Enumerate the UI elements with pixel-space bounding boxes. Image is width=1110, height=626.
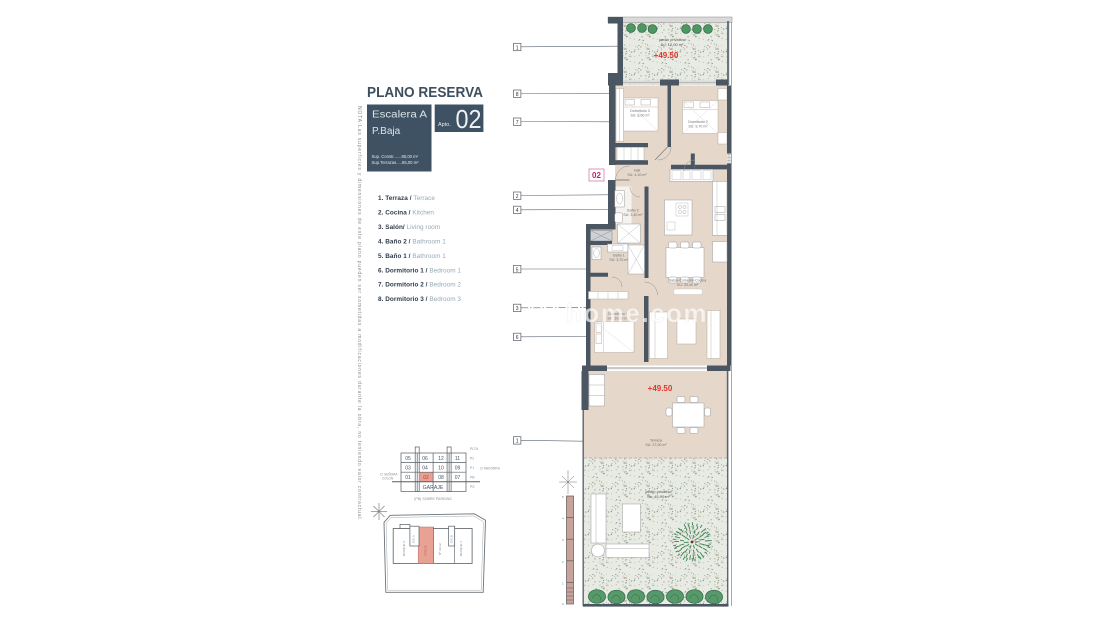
svg-text:P1: P1 xyxy=(470,466,474,470)
svg-text:BLOQUE 1: BLOQUE 1 xyxy=(459,541,463,556)
svg-text:12: 12 xyxy=(438,456,444,462)
svg-text:6. Dormitorio 1 / Bedroom 1: 6. Dormitorio 1 / Bedroom 1 xyxy=(378,268,461,275)
svg-text:PS: PS xyxy=(470,485,475,489)
svg-text:1: 1 xyxy=(516,45,519,51)
svg-text:5: 5 xyxy=(516,267,519,273)
svg-text:07: 07 xyxy=(455,475,461,481)
svg-text:Salón-Comedor-Cocina: Salón-Comedor-Cocina xyxy=(669,279,707,283)
svg-text:+49.50: +49.50 xyxy=(648,384,673,393)
svg-text:7: 7 xyxy=(516,120,519,126)
svg-text:Dormitorio 2: Dormitorio 2 xyxy=(688,120,708,124)
svg-text:ESC.A: ESC.A xyxy=(412,535,416,543)
svg-text:PLANO RESERVA: PLANO RESERVA xyxy=(367,85,483,101)
svg-text:3. Salón/ Living room: 3. Salón/ Living room xyxy=(378,224,440,231)
svg-text:Su: 45,90 m²: Su: 45,90 m² xyxy=(647,494,671,499)
svg-text:Sup.Terrazas.....85,00 m²: Sup.Terrazas.....85,00 m² xyxy=(372,160,420,165)
svg-text:(PB) SOBRE PARKING: (PB) SOBRE PARKING xyxy=(414,497,452,501)
svg-text:C/ ANDORRA: C/ ANDORRA xyxy=(480,467,501,471)
svg-text:Apto.: Apto. xyxy=(438,122,451,128)
svg-text:Sup. Constr.......86,00 m²: Sup. Constr.......86,00 m² xyxy=(372,154,419,159)
svg-text:10: 10 xyxy=(438,465,444,471)
svg-text:Su: 12,00 m²: Su: 12,00 m² xyxy=(661,42,685,47)
svg-text:8: 8 xyxy=(516,92,519,98)
svg-text:4: 4 xyxy=(516,208,519,214)
svg-text:8. Dormitorio 3 / Bedroom 3: 8. Dormitorio 3 / Bedroom 3 xyxy=(378,296,461,303)
svg-text:02: 02 xyxy=(423,475,429,481)
svg-text:6: 6 xyxy=(516,335,519,341)
svg-text:SU: 27,00 m²: SU: 27,00 m² xyxy=(645,443,667,447)
svg-text:1: 1 xyxy=(516,439,519,445)
svg-text:3: 3 xyxy=(516,306,519,312)
svg-text:01: 01 xyxy=(405,475,411,481)
svg-text:02: 02 xyxy=(592,171,601,180)
svg-text:4. Baño 2 / Bathroom 1: 4. Baño 2 / Bathroom 1 xyxy=(378,239,446,246)
svg-text:Dormitorio 3: Dormitorio 3 xyxy=(630,109,650,113)
svg-text:Nº 10-12: Nº 10-12 xyxy=(438,543,442,555)
svg-text:P2: P2 xyxy=(470,457,474,461)
svg-text:7. Dormitorio 2 / Bedroom 2: 7. Dormitorio 2 / Bedroom 2 xyxy=(378,282,461,289)
svg-text:02: 02 xyxy=(456,104,482,134)
svg-text:Baño 2: Baño 2 xyxy=(627,209,638,213)
svg-text:SU: 4,10 m²: SU: 4,10 m² xyxy=(627,173,647,177)
svg-text:NOTA:Las superficies y dimensi: NOTA:Las superficies y dimensiones de es… xyxy=(356,106,362,522)
svg-text:Terraza: Terraza xyxy=(650,439,662,443)
svg-text:ESC.B: ESC.B xyxy=(449,535,453,543)
svg-text:Hall: Hall xyxy=(634,169,640,173)
svg-text:06: 06 xyxy=(422,456,428,462)
svg-text:Escalera A: Escalera A xyxy=(372,110,427,121)
svg-text:Baño 1: Baño 1 xyxy=(613,254,624,258)
svg-text:P.Baja: P.Baja xyxy=(372,126,401,137)
svg-text:05: 05 xyxy=(405,456,411,462)
svg-text:2. Cocina / Kitchen: 2. Cocina / Kitchen xyxy=(378,210,434,217)
svg-text:1. Terraza / Terrace: 1. Terraza / Terrace xyxy=(378,195,435,202)
svg-text:2: 2 xyxy=(516,194,519,200)
svg-text:09: 09 xyxy=(455,465,461,471)
svg-text:+49.50: +49.50 xyxy=(654,51,679,60)
svg-text:SU: 3,40 m²: SU: 3,40 m² xyxy=(623,213,643,217)
svg-text:GARAJE: GARAJE xyxy=(423,485,444,491)
svg-text:home.com: home.com xyxy=(566,298,708,328)
svg-text:PLTA: PLTA xyxy=(470,447,479,451)
svg-text:APTO 02: APTO 02 xyxy=(424,545,428,556)
svg-text:03: 03 xyxy=(405,465,411,471)
svg-text:PB: PB xyxy=(470,476,475,480)
svg-text:BLOQUE 2: BLOQUE 2 xyxy=(402,541,406,556)
svg-text:04: 04 xyxy=(422,465,428,471)
svg-text:COLON: COLON xyxy=(382,477,394,481)
svg-text:SU: 33,40 m²: SU: 33,40 m² xyxy=(677,283,699,287)
svg-text:SU: 3,70 m²: SU: 3,70 m² xyxy=(609,258,629,262)
svg-text:11: 11 xyxy=(455,456,460,462)
svg-text:5. Baño 1 / Bathroom 1: 5. Baño 1 / Bathroom 1 xyxy=(378,253,446,260)
svg-text:08: 08 xyxy=(438,475,444,481)
